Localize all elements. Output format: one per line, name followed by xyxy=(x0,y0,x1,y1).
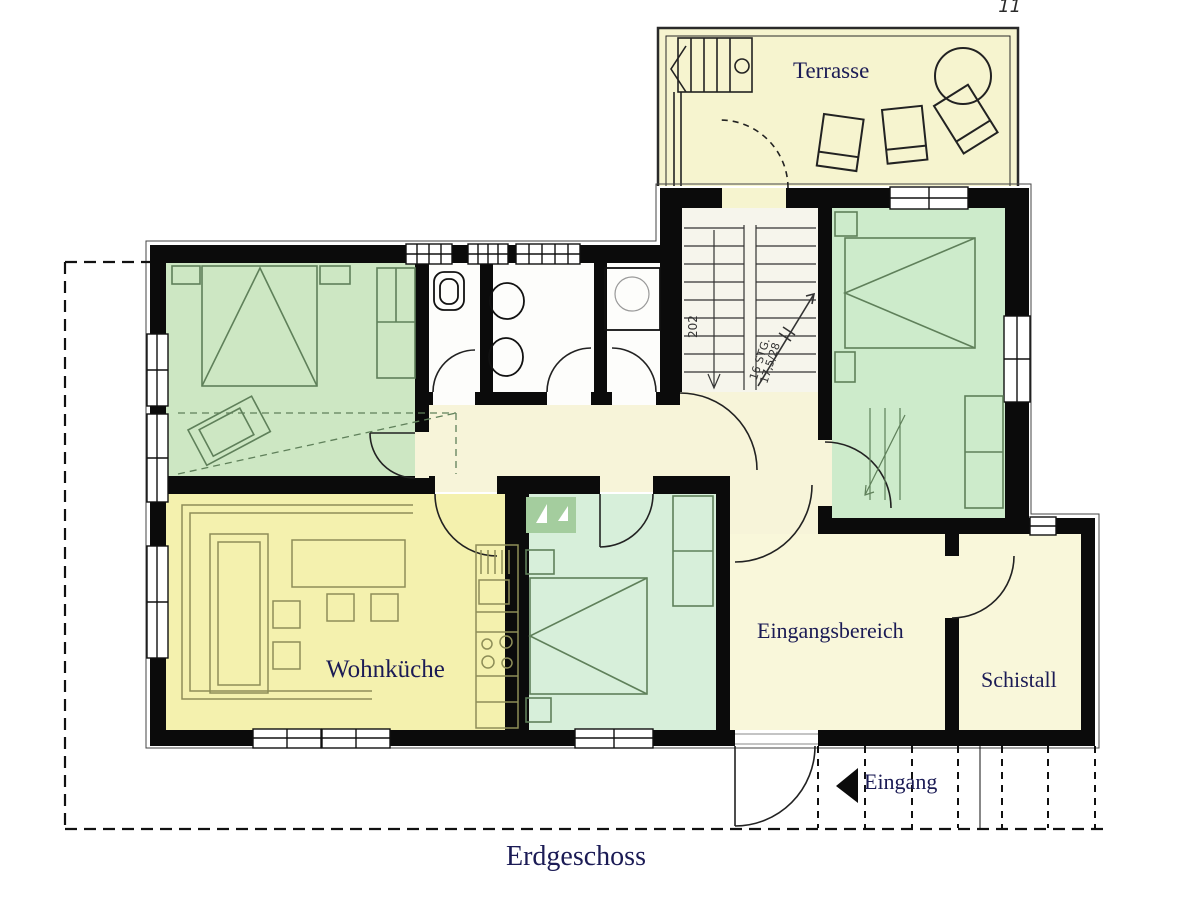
window-icon xyxy=(147,334,168,658)
room-label-eingangsbereich: Eingangsbereich xyxy=(757,618,904,644)
window-icon xyxy=(1030,517,1056,535)
porch xyxy=(818,746,1095,828)
bedroom-right-doorway xyxy=(818,440,832,506)
entrance-label: Eingang xyxy=(864,769,937,795)
floor-plan-drawing xyxy=(0,0,1200,900)
bedroom-right-floor xyxy=(832,208,1005,518)
stair-number-annotation: 202 xyxy=(686,315,700,338)
kitchen-floor xyxy=(166,494,505,730)
room-label-schistall: Schistall xyxy=(981,667,1057,693)
window-icon xyxy=(890,187,968,209)
floor-plan: Terrasse Wohnküche Eingangsbereich Schis… xyxy=(0,0,1200,900)
plan-caption: Erdgeschoss xyxy=(506,841,646,873)
room-label-wohnkueche: Wohnküche xyxy=(326,656,445,684)
window-icon xyxy=(1004,316,1030,402)
vent-symbol xyxy=(526,497,576,533)
entrance-arrow-icon xyxy=(836,768,858,803)
entrance-door-arc xyxy=(735,746,815,826)
terrace xyxy=(658,28,1018,186)
room-label-terrasse: Terrasse xyxy=(793,58,869,84)
bath-floor xyxy=(493,262,594,392)
window-icon xyxy=(406,244,580,264)
corner-tally-mark: 11 xyxy=(996,0,1023,17)
ski-room-floor xyxy=(959,534,1081,730)
room-floors xyxy=(166,208,1081,730)
